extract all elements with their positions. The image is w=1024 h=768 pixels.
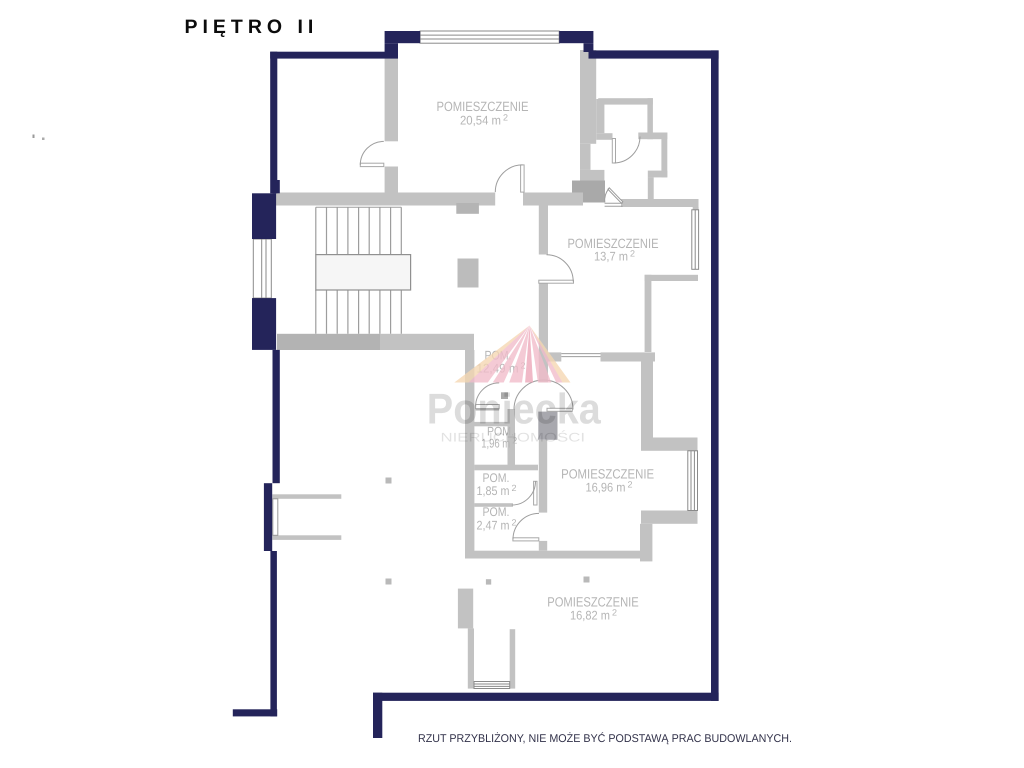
svg-text:RZUT PRZYBLIŻONY, NIE MOŻE BYĆ: RZUT PRZYBLIŻONY, NIE MOŻE BYĆ PODSTAWĄ …: [418, 732, 792, 745]
svg-text:Poniecka: Poniecka: [427, 386, 602, 434]
svg-text:13,7 m: 13,7 m: [594, 250, 628, 264]
svg-text:POM.: POM.: [483, 505, 510, 519]
svg-text:NIERUCHOMOŚCI: NIERUCHOMOŚCI: [441, 430, 586, 445]
svg-text:POM.: POM.: [483, 471, 510, 485]
svg-text:16,82 m: 16,82 m: [570, 609, 610, 623]
svg-text:POMIESZCZENIE: POMIESZCZENIE: [547, 594, 639, 609]
svg-text:2,47 m: 2,47 m: [477, 519, 510, 533]
svg-text:2: 2: [630, 249, 635, 259]
svg-text:1,85 m: 1,85 m: [477, 484, 510, 498]
svg-text:20,54 m: 20,54 m: [460, 114, 501, 128]
svg-text:16,96 m: 16,96 m: [586, 480, 626, 494]
svg-text:2: 2: [612, 608, 617, 618]
svg-text:PIĘTRO II: PIĘTRO II: [185, 16, 319, 38]
svg-text:POMIESZCZENIE: POMIESZCZENIE: [437, 99, 529, 114]
svg-text:2: 2: [512, 518, 517, 528]
svg-text:POMIESZCZENIE: POMIESZCZENIE: [561, 467, 654, 482]
svg-text:2: 2: [503, 113, 508, 123]
svg-text:2: 2: [512, 483, 517, 493]
svg-text:2: 2: [628, 479, 633, 489]
